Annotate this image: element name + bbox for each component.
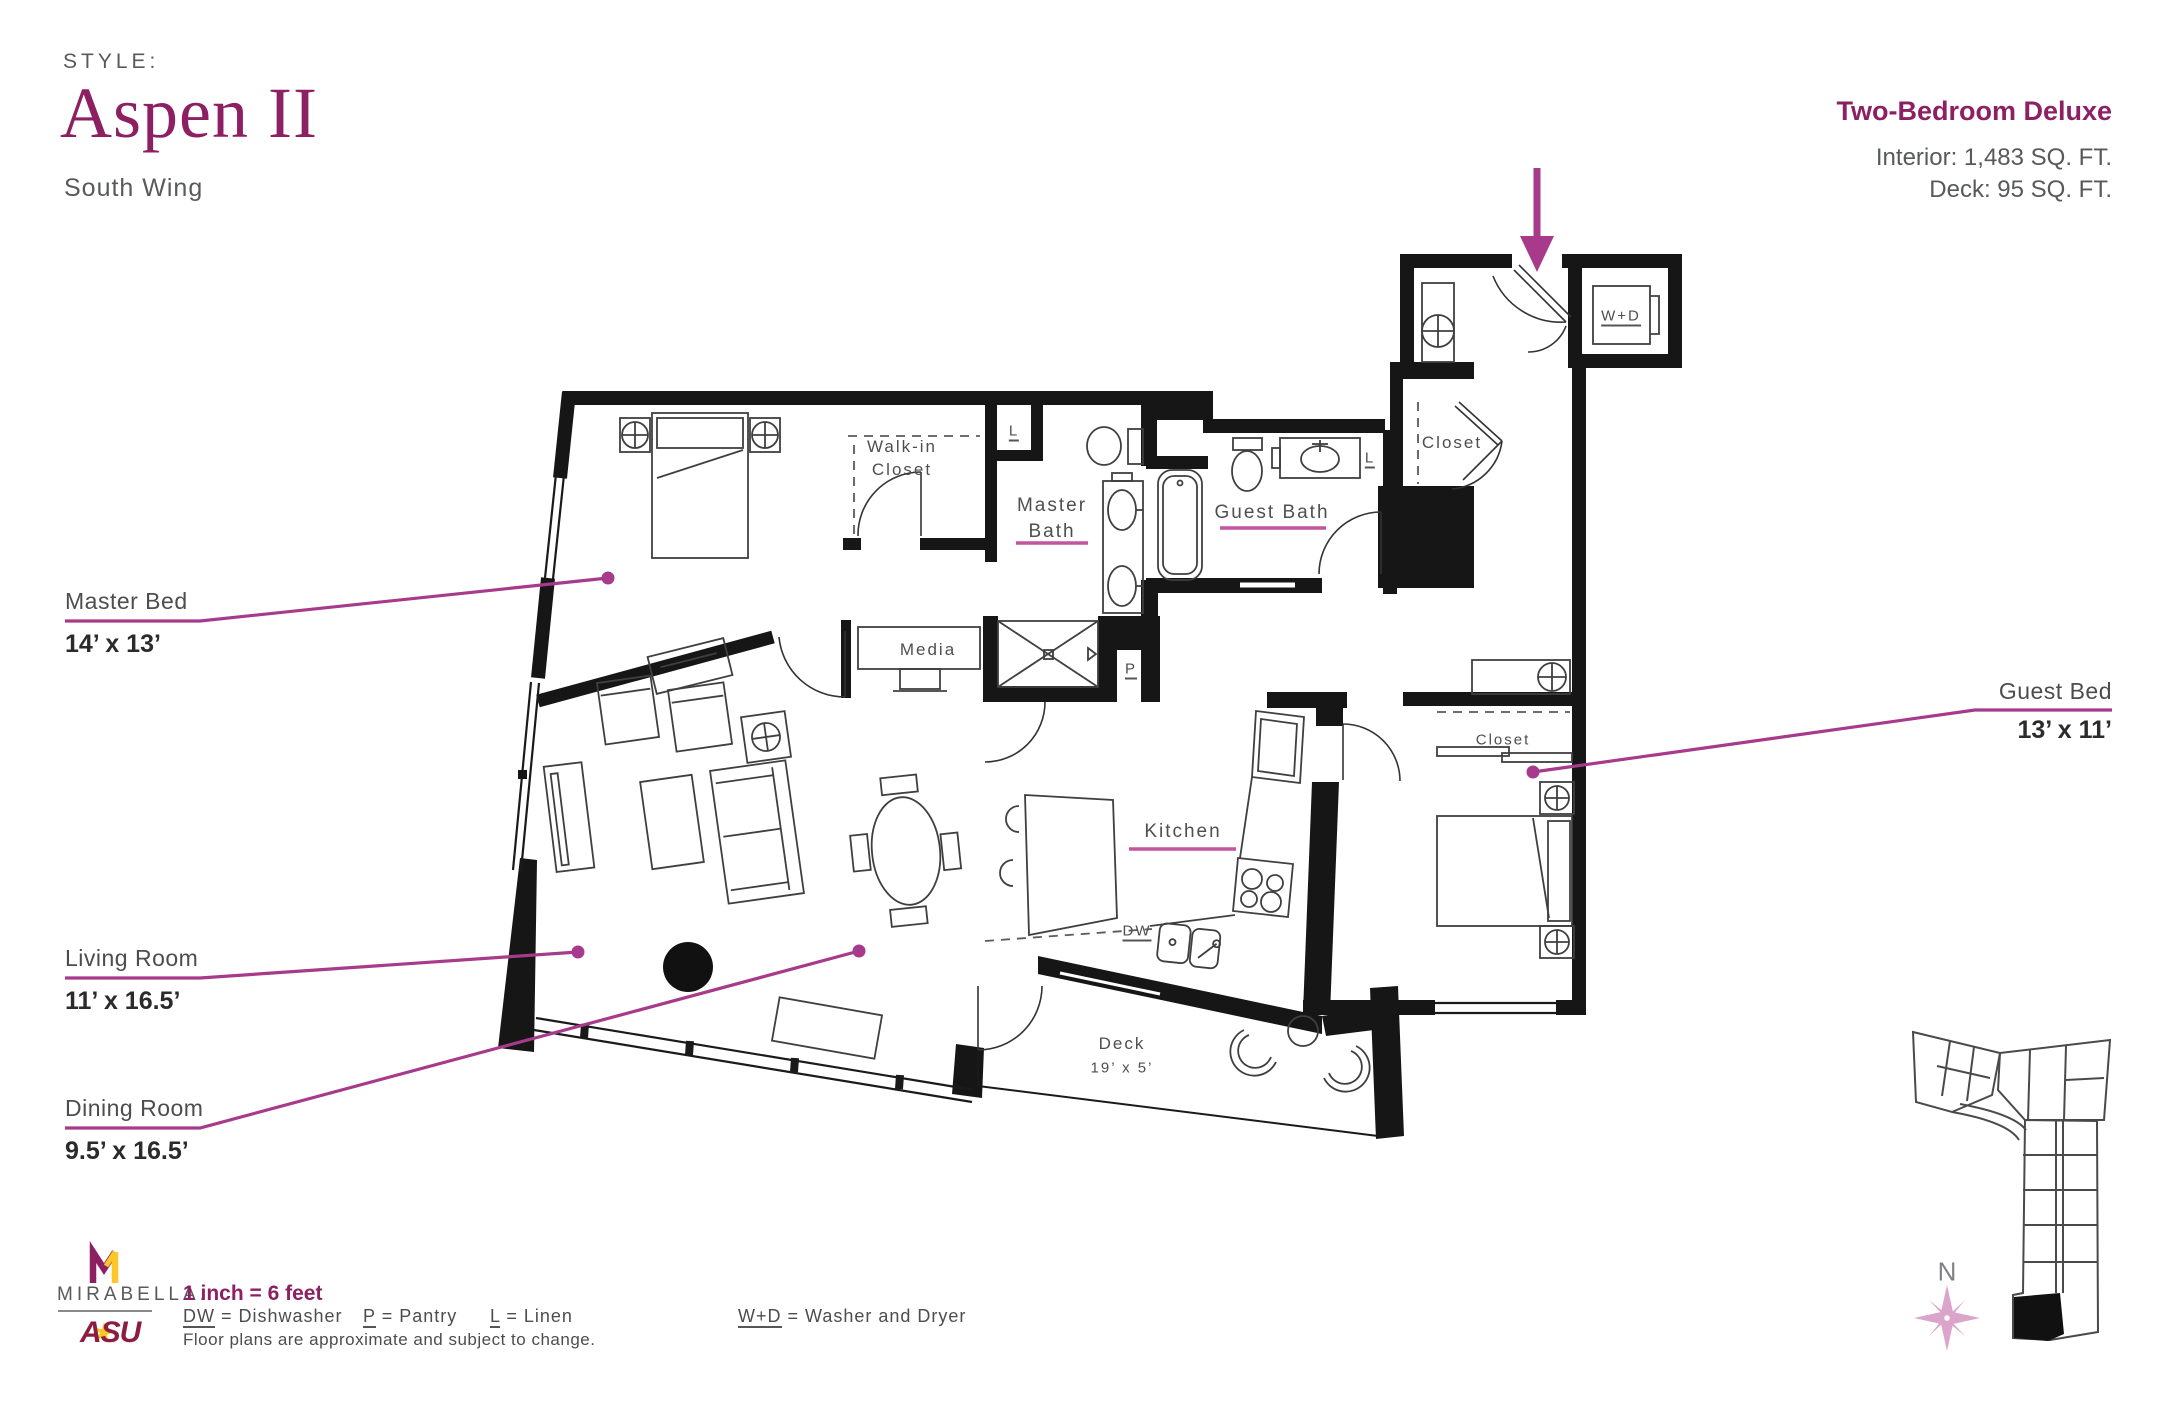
- style-label: STYLE:: [63, 50, 159, 74]
- legend-item-washer-dryer: W+D = Washer and Dryer: [738, 1306, 966, 1327]
- island: [1025, 795, 1117, 935]
- plan-type: Two-Bedroom Deluxe: [1836, 96, 2112, 127]
- media-label: Media: [900, 640, 956, 660]
- pantry-label: P: [1125, 661, 1137, 678]
- dishwasher-label: DW: [1123, 923, 1152, 940]
- wing-subtitle: South Wing: [64, 174, 203, 203]
- interior-sqft: Interior: 1,483 SQ. FT.: [1876, 144, 2112, 172]
- tv-console: [544, 762, 595, 872]
- master-bed-label: Master Bed: [65, 588, 188, 615]
- doors-layer: [779, 265, 1571, 1050]
- legend-key: DW: [183, 1306, 215, 1328]
- key-plan: [1913, 1032, 2110, 1341]
- lamp-icon: [752, 422, 778, 448]
- guest-bath-label: Guest Bath: [1214, 502, 1329, 524]
- dining-room-dims: 9.5’ x 16.5’: [65, 1137, 189, 1166]
- living-room-dims: 11’ x 16.5’: [65, 987, 180, 1016]
- dashed-layer: [848, 402, 1570, 941]
- entry-closet-label: Closet: [1422, 433, 1482, 453]
- toilet-icon: [1233, 438, 1262, 450]
- guest-bed-label: Guest Bed: [1999, 678, 2112, 705]
- disclaimer-note: Floor plans are approximate and subject …: [183, 1330, 595, 1350]
- floor-plan-drawing: [0, 0, 2176, 1408]
- legend-name: Pantry: [399, 1306, 457, 1326]
- kitchen-label: Kitchen: [1144, 821, 1221, 843]
- deck-label: Deck: [1099, 1034, 1146, 1054]
- toilet-icon: [1128, 429, 1143, 464]
- legend-sep: =: [215, 1306, 239, 1326]
- linen-label-guest: L: [1365, 450, 1375, 467]
- legend-sep: =: [782, 1306, 806, 1326]
- lamp-table: [741, 711, 791, 763]
- linen-key: L: [1009, 423, 1019, 442]
- unit-highlight: [2014, 1293, 2064, 1341]
- pantry-key: P: [1125, 661, 1137, 680]
- deck-sqft: Deck: 95 SQ. FT.: [1929, 176, 2112, 204]
- legend-name: Linen: [524, 1306, 573, 1326]
- linen-label-master: L: [1009, 423, 1019, 440]
- deck-dims: 19’ x 5’: [1091, 1060, 1154, 1077]
- guest-bed-furniture: [1437, 747, 1574, 958]
- page-title: Aspen II: [60, 72, 318, 155]
- lamp-icon: [622, 422, 648, 448]
- walls-layer: [498, 254, 1682, 1139]
- guest-closet-label: Closet: [1476, 732, 1531, 749]
- sink-icon: [1156, 923, 1221, 969]
- structural-column: [663, 942, 713, 992]
- legend-sep: =: [376, 1306, 400, 1326]
- legend-key: W+D: [738, 1306, 782, 1328]
- north-label: N: [1938, 1257, 1957, 1288]
- asu-logo: ASU: [80, 1316, 140, 1350]
- entry-arrow-icon: [1520, 168, 1554, 272]
- legend-item-pantry: P = Pantry: [363, 1306, 457, 1327]
- console-table: [1472, 660, 1570, 694]
- legend-key: P: [363, 1306, 376, 1328]
- floor-plan-page: STYLE: Aspen II South Wing Two-Bedroom D…: [0, 0, 2176, 1408]
- master-bath-label-2: Bath: [1028, 521, 1075, 543]
- bathtub-icon: [1158, 470, 1202, 580]
- legend-key: L: [490, 1306, 500, 1328]
- master-bed-dims: 14’ x 13’: [65, 630, 161, 659]
- legend-item-dishwasher: DW = Dishwasher: [183, 1306, 343, 1327]
- dining-furniture: [844, 771, 966, 930]
- master-bath-label-1: Master: [1017, 495, 1087, 517]
- guest-bed-dims: 13’ x 11’: [2017, 716, 2112, 745]
- shower-icon: [998, 621, 1098, 687]
- linen-key: L: [1365, 450, 1375, 469]
- living-room-furniture: [544, 676, 882, 1059]
- dining-room-label: Dining Room: [65, 1095, 203, 1122]
- washer-dryer-label: W+D: [1601, 308, 1641, 325]
- legend-sep: =: [500, 1306, 524, 1326]
- legend-item-linen: L = Linen: [490, 1306, 573, 1327]
- compass-rose-icon: [1914, 1285, 1980, 1351]
- washer-dryer-key: W+D: [1601, 308, 1641, 327]
- scale-note: 1 inch = 6 feet: [183, 1282, 322, 1306]
- living-room-label: Living Room: [65, 945, 198, 972]
- dishwasher-key: DW: [1123, 923, 1152, 942]
- walk-in-closet-label-1: Walk-in: [867, 437, 937, 457]
- walk-in-closet-label-2: Closet: [872, 460, 932, 480]
- legend-name: Dishwasher: [239, 1306, 343, 1326]
- sofa: [710, 760, 804, 903]
- legend-name: Washer and Dryer: [805, 1306, 966, 1326]
